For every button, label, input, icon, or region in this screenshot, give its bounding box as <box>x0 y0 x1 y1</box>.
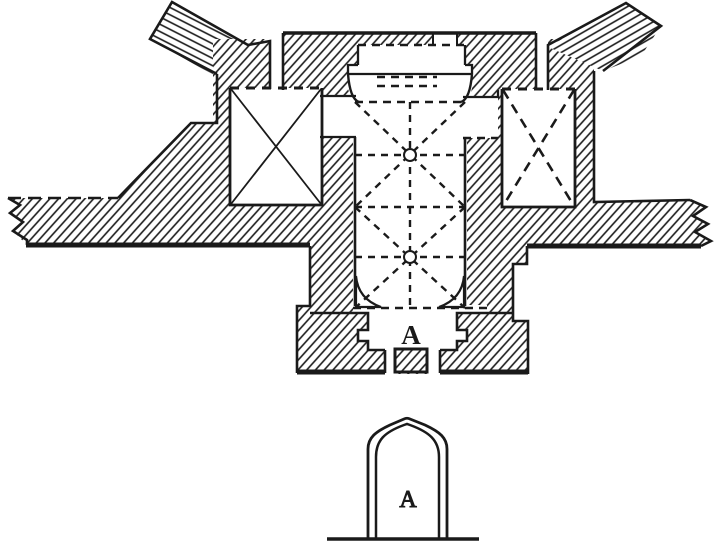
right-edge-wall <box>575 88 594 196</box>
niche-recess <box>348 45 472 74</box>
right-band-wall <box>594 200 711 247</box>
top-gap-left <box>270 34 283 90</box>
entrance-pier <box>395 349 427 373</box>
bay2-boss <box>404 251 416 263</box>
architectural-plan-figure: A A <box>0 0 720 548</box>
entrance-elevation: A <box>327 418 479 539</box>
engraving-page: A A <box>0 0 720 548</box>
labels: A <box>401 320 421 350</box>
right-block-edge <box>594 71 690 202</box>
left-band-wall <box>8 123 234 246</box>
niche-slot <box>433 34 457 45</box>
elevation-entrance-label: A <box>399 487 417 513</box>
passage-right <box>463 97 498 138</box>
bay1-boss <box>404 149 416 161</box>
elevation-inner-arch <box>376 424 439 538</box>
passage-left <box>320 97 356 137</box>
elevation-outer-arch <box>368 418 447 538</box>
plan-entrance-label: A <box>401 320 421 350</box>
